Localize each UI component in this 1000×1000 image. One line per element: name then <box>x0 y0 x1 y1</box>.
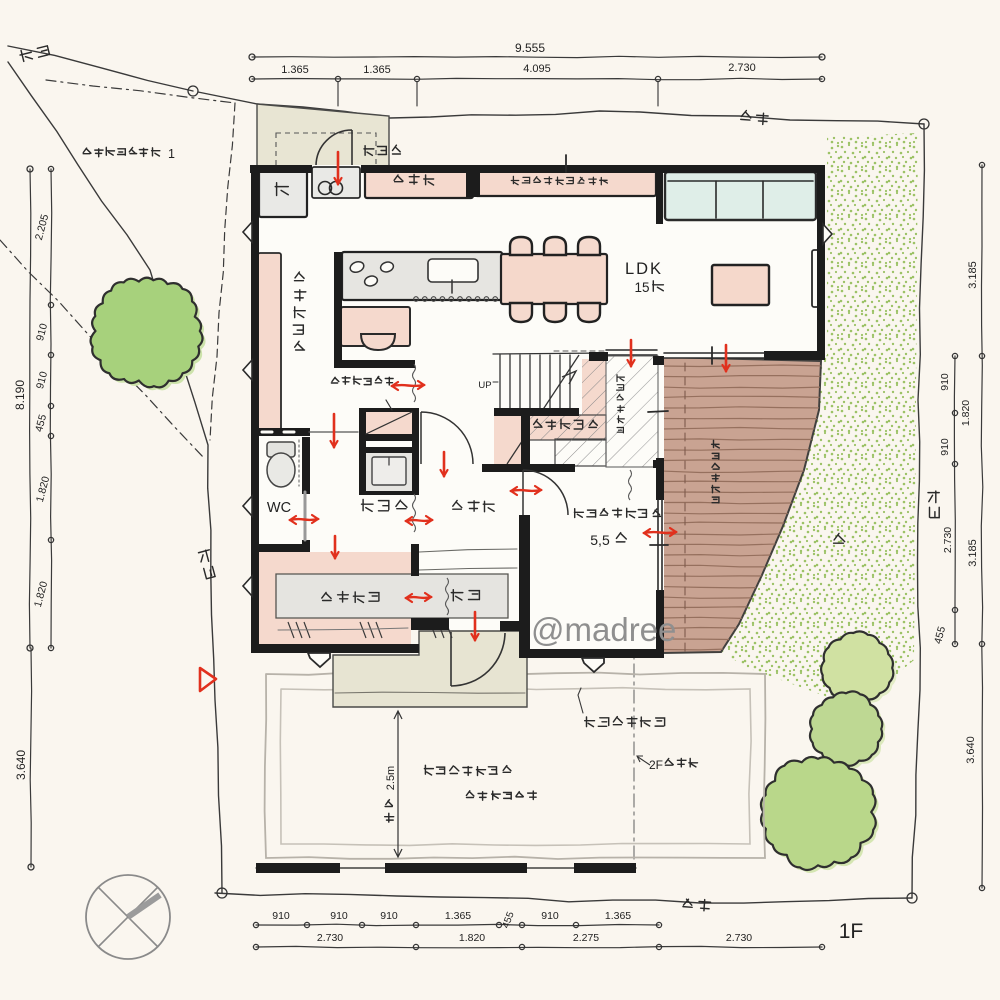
svg-text:1.365: 1.365 <box>605 910 631 922</box>
svg-text:2.275: 2.275 <box>573 932 599 944</box>
svg-text:LDK: LDK <box>625 260 663 278</box>
svg-text:UP: UP <box>478 380 491 391</box>
svg-text:8.190: 8.190 <box>13 380 27 410</box>
svg-text:910: 910 <box>541 910 559 922</box>
svg-text:1: 1 <box>168 147 175 161</box>
svg-text:2.5m: 2.5m <box>385 766 397 790</box>
svg-text:2.730: 2.730 <box>317 932 343 944</box>
svg-text:910: 910 <box>939 373 951 391</box>
svg-text:910: 910 <box>330 910 348 922</box>
svg-text:910: 910 <box>380 910 398 922</box>
svg-text:1.820: 1.820 <box>960 400 972 426</box>
svg-text:3.185: 3.185 <box>967 261 979 289</box>
svg-text:5,5: 5,5 <box>590 532 610 548</box>
svg-text:1F: 1F <box>839 920 864 943</box>
svg-text:WC: WC <box>267 500 291 516</box>
svg-text:@madree: @madree <box>531 611 676 648</box>
svg-text:1.365: 1.365 <box>363 64 391 76</box>
svg-text:2.730: 2.730 <box>726 932 752 944</box>
svg-text:4.095: 4.095 <box>523 63 551 75</box>
svg-text:910: 910 <box>272 910 290 922</box>
svg-text:1.365: 1.365 <box>445 910 471 922</box>
svg-text:910: 910 <box>939 438 951 456</box>
svg-text:15: 15 <box>634 280 649 295</box>
svg-text:3.640: 3.640 <box>965 736 977 764</box>
svg-text:9.555: 9.555 <box>515 41 545 55</box>
svg-text:1.820: 1.820 <box>459 932 485 944</box>
svg-text:3.185: 3.185 <box>967 539 979 567</box>
svg-text:2F: 2F <box>649 758 663 772</box>
svg-text:1.365: 1.365 <box>281 64 309 76</box>
svg-text:3.640: 3.640 <box>14 750 28 780</box>
svg-text:2.730: 2.730 <box>728 62 756 74</box>
svg-text:2.730: 2.730 <box>942 527 954 553</box>
